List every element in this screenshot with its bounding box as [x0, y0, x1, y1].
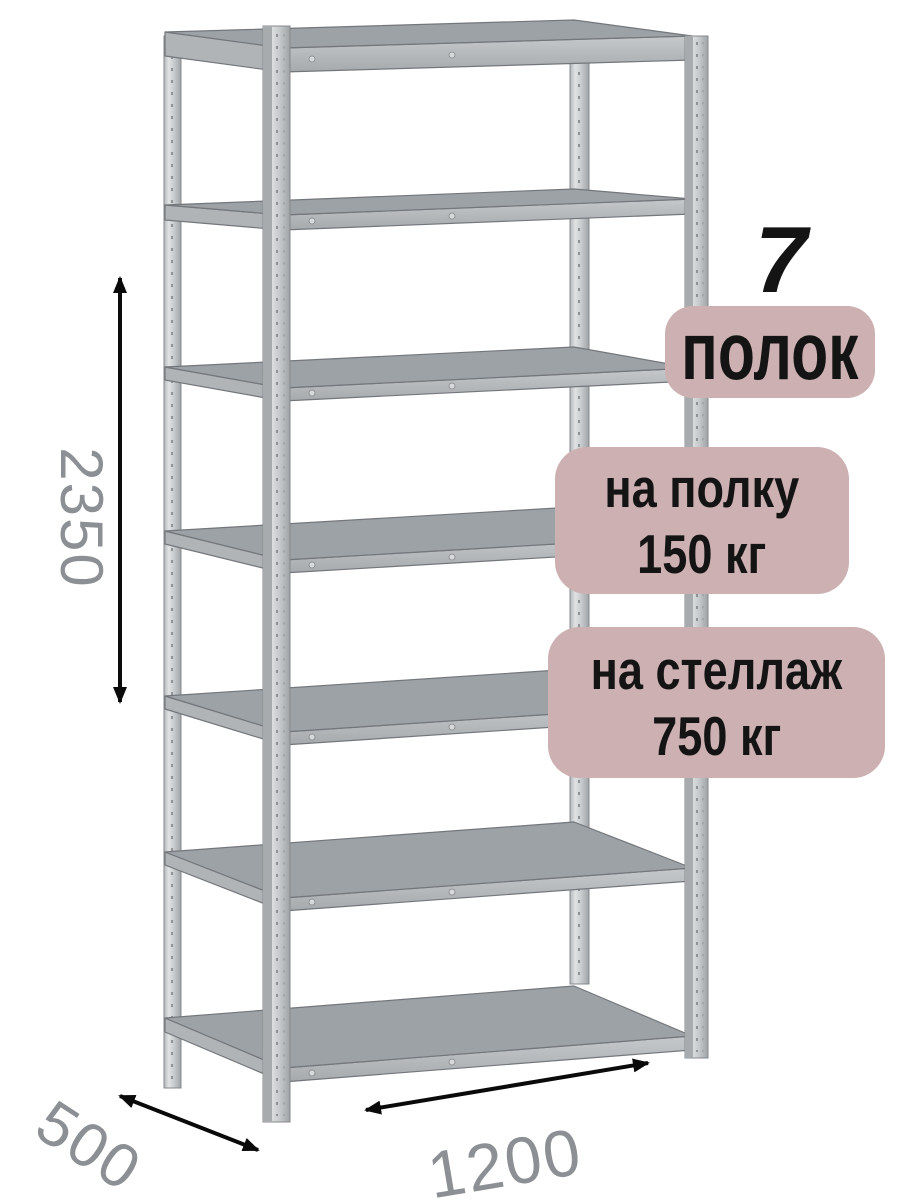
- shelf-2: [165, 189, 692, 230]
- rack-load-value: 750 кг: [652, 703, 781, 769]
- shelf-1: [165, 20, 692, 72]
- rack-load-text: на стеллаж: [591, 637, 842, 703]
- shelf-count-number: 7: [706, 212, 856, 308]
- shelf-3: [165, 347, 692, 401]
- shelf-6: [165, 822, 692, 911]
- height-dimension-label: 2350: [48, 398, 116, 638]
- shelf-load-text: на полку: [605, 455, 800, 521]
- rack-load-badge: на стеллаж 750 кг: [548, 627, 885, 778]
- shelving-rack-illustration: [0, 0, 900, 1200]
- product-image: 2350 500 1200 7 полок на полку 150 кг на…: [0, 0, 900, 1200]
- shelf-count-caption: полок: [681, 305, 858, 399]
- front-left-post-edge: [263, 26, 272, 1122]
- shelf-count-badge: полок: [665, 306, 875, 398]
- shelf-load-value: 150 кг: [637, 521, 766, 587]
- shelf-load-badge: на полку 150 кг: [555, 447, 849, 594]
